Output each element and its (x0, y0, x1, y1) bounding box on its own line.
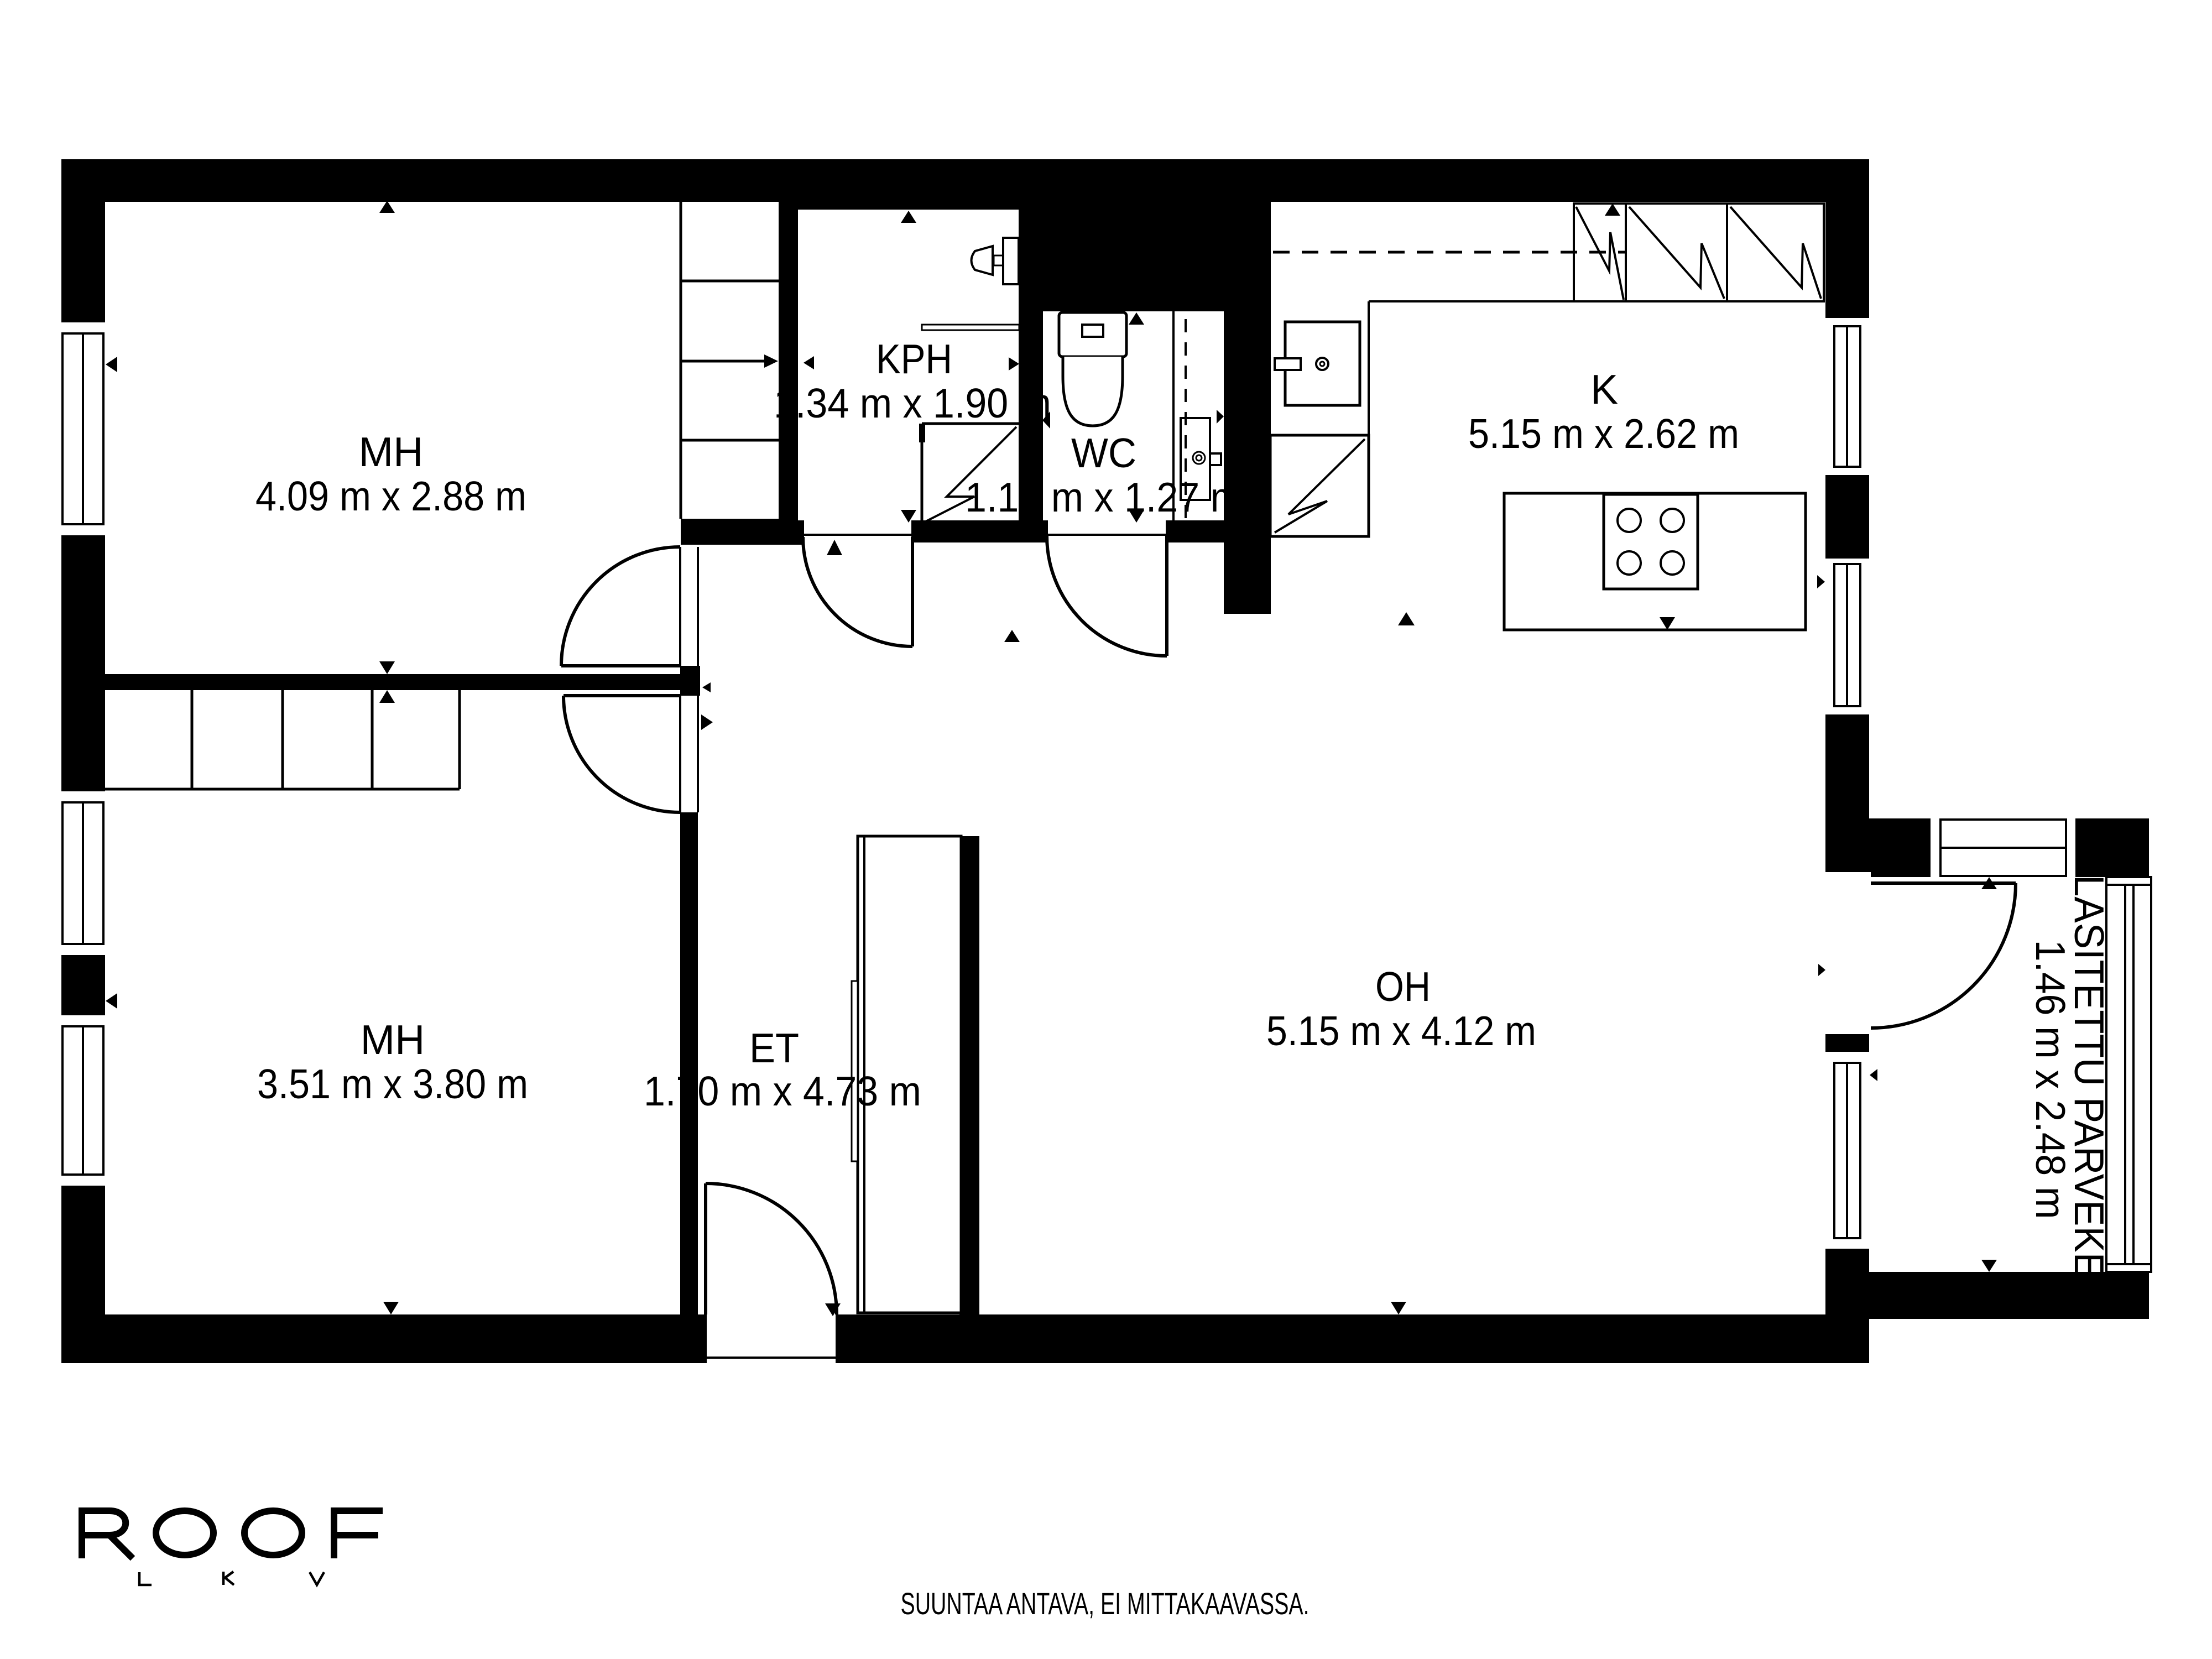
svg-text:WC: WC (1071, 430, 1136, 476)
svg-text:4.09 m x 2.88 m: 4.09 m x 2.88 m (255, 473, 526, 519)
svg-text:SUUNTAA ANTAVA, EI MITTAKAAVAS: SUUNTAA ANTAVA, EI MITTAKAAVASSA. (901, 1586, 1310, 1621)
svg-text:MH: MH (359, 429, 424, 475)
svg-text:5.15 m x 2.62 m: 5.15 m x 2.62 m (1468, 410, 1739, 457)
svg-text:1.34 m x 1.90 m: 1.34 m x 1.90 m (774, 380, 1051, 426)
svg-text:KPH: KPH (876, 336, 952, 382)
svg-text:ET: ET (749, 1025, 799, 1071)
svg-text:1.19 m x 1.27 m: 1.19 m x 1.27 m (965, 474, 1243, 520)
svg-text:MH: MH (361, 1016, 425, 1063)
svg-text:1.46 m x 2.48 m: 1.46 m x 2.48 m (2027, 940, 2074, 1219)
svg-text:5.15 m x 4.12 m: 5.15 m x 4.12 m (1266, 1008, 1536, 1054)
svg-text:3.51 m x 3.80 m: 3.51 m x 3.80 m (257, 1061, 528, 1107)
svg-text:K: K (1590, 366, 1618, 413)
svg-text:OH: OH (1375, 963, 1431, 1010)
